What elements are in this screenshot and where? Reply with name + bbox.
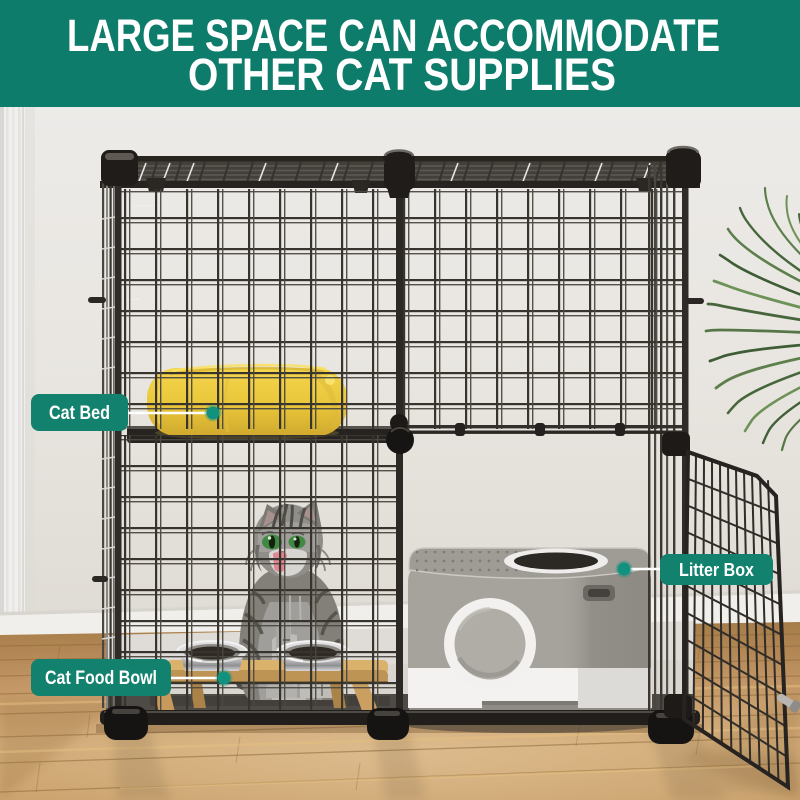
- svg-text:Cat Bed: Cat Bed: [49, 403, 110, 424]
- svg-text:Litter Box: Litter Box: [679, 559, 755, 580]
- svg-text:OTHER CAT SUPPLIES: OTHER CAT SUPPLIES: [188, 49, 616, 100]
- svg-text:Cat Food Bowl: Cat Food Bowl: [45, 668, 157, 689]
